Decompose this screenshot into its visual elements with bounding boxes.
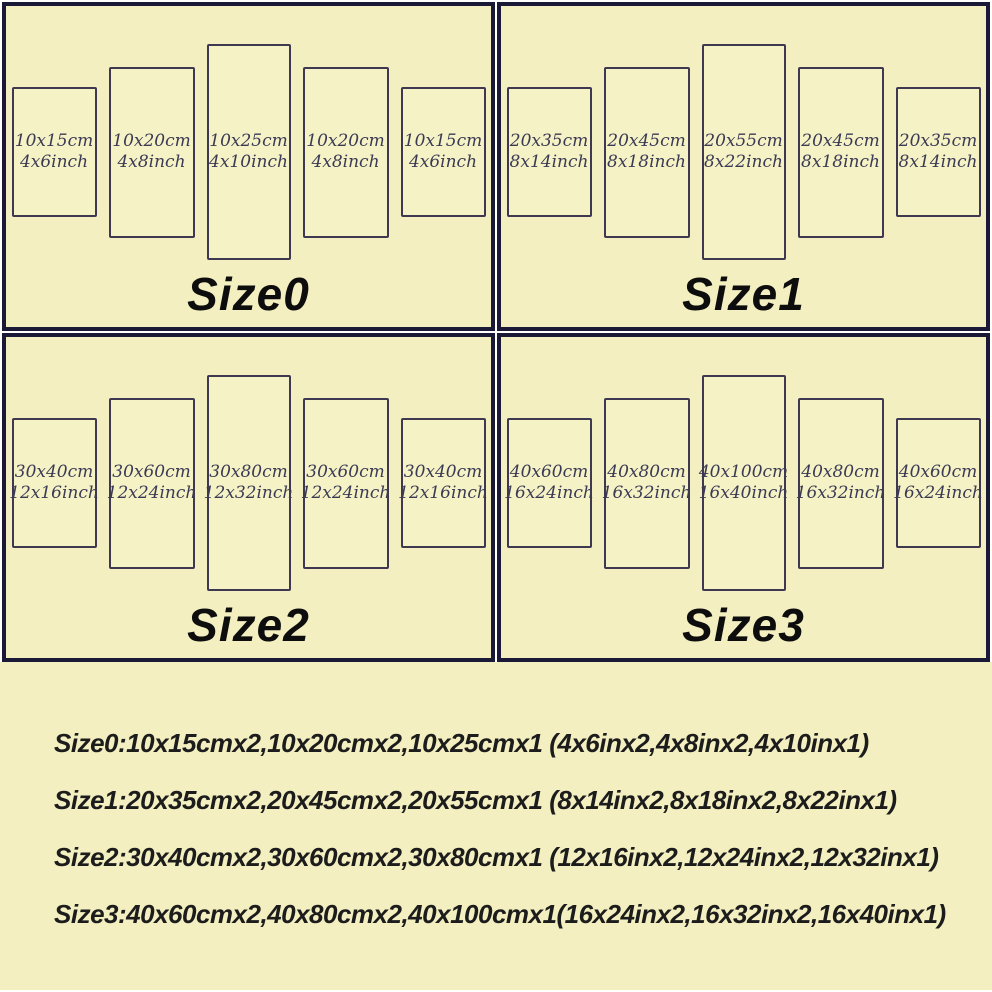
panel: 30x60cm 12x24inch bbox=[303, 398, 389, 569]
panel-inch-label: 16x32inch bbox=[796, 483, 886, 504]
panel: 10x20cm 4x8inch bbox=[303, 67, 389, 238]
panel-inch-label: 4x6inch bbox=[409, 152, 477, 173]
panel-cm-label: 10x15cm bbox=[15, 131, 94, 152]
panel: 40x60cm 16x24inch bbox=[896, 418, 981, 548]
panel-cm-label: 30x40cm bbox=[15, 462, 94, 483]
size-chart-board: 10x15cm 4x6inch 10x20cm 4x8inch 10x25cm … bbox=[0, 0, 992, 992]
panel-cm-label: 30x80cm bbox=[209, 462, 288, 483]
panel-inch-label: 16x24inch bbox=[893, 483, 983, 504]
panel: 30x80cm 12x32inch bbox=[207, 375, 291, 591]
panel: 40x60cm 16x24inch bbox=[507, 418, 592, 548]
panel-inch-label: 8x18inch bbox=[801, 152, 880, 173]
panel: 30x40cm 12x16inch bbox=[401, 418, 486, 548]
panel-cm-label: 40x80cm bbox=[801, 462, 880, 483]
panel-inch-label: 4x10inch bbox=[209, 152, 288, 173]
panel-cm-label: 20x45cm bbox=[607, 131, 686, 152]
panel-inch-label: 12x24inch bbox=[301, 483, 391, 504]
panel-cm-label: 40x100cm bbox=[699, 462, 788, 483]
panel-row-size3: 40x60cm 16x24inch 40x80cm 16x32inch 40x1… bbox=[501, 375, 986, 591]
size-summary-section: Size0:10x15cmx2,10x20cmx2,10x25cmx1 (4x6… bbox=[0, 662, 992, 990]
summary-line-size2: Size2:30x40cmx2,30x60cmx2,30x80cmx1 (12x… bbox=[54, 842, 972, 872]
quadrant-size3: 40x60cm 16x24inch 40x80cm 16x32inch 40x1… bbox=[497, 333, 990, 662]
panel-inch-label: 4x6inch bbox=[20, 152, 88, 173]
panel-cm-label: 10x20cm bbox=[112, 131, 191, 152]
panel: 10x20cm 4x8inch bbox=[109, 67, 195, 238]
panel-cm-label: 30x60cm bbox=[112, 462, 191, 483]
panel-inch-label: 12x16inch bbox=[398, 483, 488, 504]
panel-cm-label: 20x45cm bbox=[801, 131, 880, 152]
panel-cm-label: 40x60cm bbox=[510, 462, 589, 483]
panel: 10x15cm 4x6inch bbox=[12, 87, 97, 217]
panel: 40x80cm 16x32inch bbox=[604, 398, 690, 569]
panel-inch-label: 16x24inch bbox=[504, 483, 594, 504]
quadrant-label-size2: Size2 bbox=[6, 598, 491, 652]
panel: 10x15cm 4x6inch bbox=[401, 87, 486, 217]
panel-cm-label: 30x40cm bbox=[404, 462, 483, 483]
quadrant-label-size1: Size1 bbox=[501, 267, 986, 321]
panel: 30x40cm 12x16inch bbox=[12, 418, 97, 548]
panel-inch-label: 16x32inch bbox=[602, 483, 692, 504]
panel: 40x80cm 16x32inch bbox=[798, 398, 884, 569]
panel: 10x25cm 4x10inch bbox=[207, 44, 291, 260]
panel: 30x60cm 12x24inch bbox=[109, 398, 195, 569]
panel-cm-label: 20x35cm bbox=[510, 131, 589, 152]
panel: 20x35cm 8x14inch bbox=[507, 87, 592, 217]
panel-inch-label: 8x18inch bbox=[607, 152, 686, 173]
panel-inch-label: 12x16inch bbox=[9, 483, 99, 504]
quadrant-label-size3: Size3 bbox=[501, 598, 986, 652]
panel-cm-label: 20x35cm bbox=[899, 131, 978, 152]
panel: 40x100cm 16x40inch bbox=[702, 375, 786, 591]
panel-inch-label: 8x14inch bbox=[510, 152, 589, 173]
size-grid: 10x15cm 4x6inch 10x20cm 4x8inch 10x25cm … bbox=[0, 0, 992, 662]
panel-cm-label: 10x25cm bbox=[209, 131, 288, 152]
panel-inch-label: 16x40inch bbox=[699, 483, 789, 504]
panel-inch-label: 8x22inch bbox=[704, 152, 783, 173]
panel-inch-label: 4x8inch bbox=[117, 152, 185, 173]
quadrant-size1: 20x35cm 8x14inch 20x45cm 8x18inch 20x55c… bbox=[497, 2, 990, 331]
quadrant-size0: 10x15cm 4x6inch 10x20cm 4x8inch 10x25cm … bbox=[2, 2, 495, 331]
quadrant-label-size0: Size0 bbox=[6, 267, 491, 321]
panel-row-size0: 10x15cm 4x6inch 10x20cm 4x8inch 10x25cm … bbox=[6, 44, 491, 260]
panel-row-size1: 20x35cm 8x14inch 20x45cm 8x18inch 20x55c… bbox=[501, 44, 986, 260]
panel-cm-label: 40x80cm bbox=[607, 462, 686, 483]
panel-inch-label: 8x14inch bbox=[899, 152, 978, 173]
panel-cm-label: 10x15cm bbox=[404, 131, 483, 152]
panel-cm-label: 40x60cm bbox=[899, 462, 978, 483]
panel-inch-label: 12x32inch bbox=[204, 483, 294, 504]
panel-inch-label: 12x24inch bbox=[107, 483, 197, 504]
panel-cm-label: 20x55cm bbox=[704, 131, 783, 152]
panel: 20x45cm 8x18inch bbox=[604, 67, 690, 238]
summary-line-size0: Size0:10x15cmx2,10x20cmx2,10x25cmx1 (4x6… bbox=[54, 728, 972, 758]
summary-line-size3: Size3:40x60cmx2,40x80cmx2,40x100cmx1(16x… bbox=[54, 899, 972, 929]
panel-cm-label: 30x60cm bbox=[306, 462, 385, 483]
panel: 20x45cm 8x18inch bbox=[798, 67, 884, 238]
panel: 20x55cm 8x22inch bbox=[702, 44, 786, 260]
panel-inch-label: 4x8inch bbox=[311, 152, 379, 173]
panel-cm-label: 10x20cm bbox=[306, 131, 385, 152]
summary-line-size1: Size1:20x35cmx2,20x45cmx2,20x55cmx1 (8x1… bbox=[54, 785, 972, 815]
panel: 20x35cm 8x14inch bbox=[896, 87, 981, 217]
panel-row-size2: 30x40cm 12x16inch 30x60cm 12x24inch 30x8… bbox=[6, 375, 491, 591]
quadrant-size2: 30x40cm 12x16inch 30x60cm 12x24inch 30x8… bbox=[2, 333, 495, 662]
